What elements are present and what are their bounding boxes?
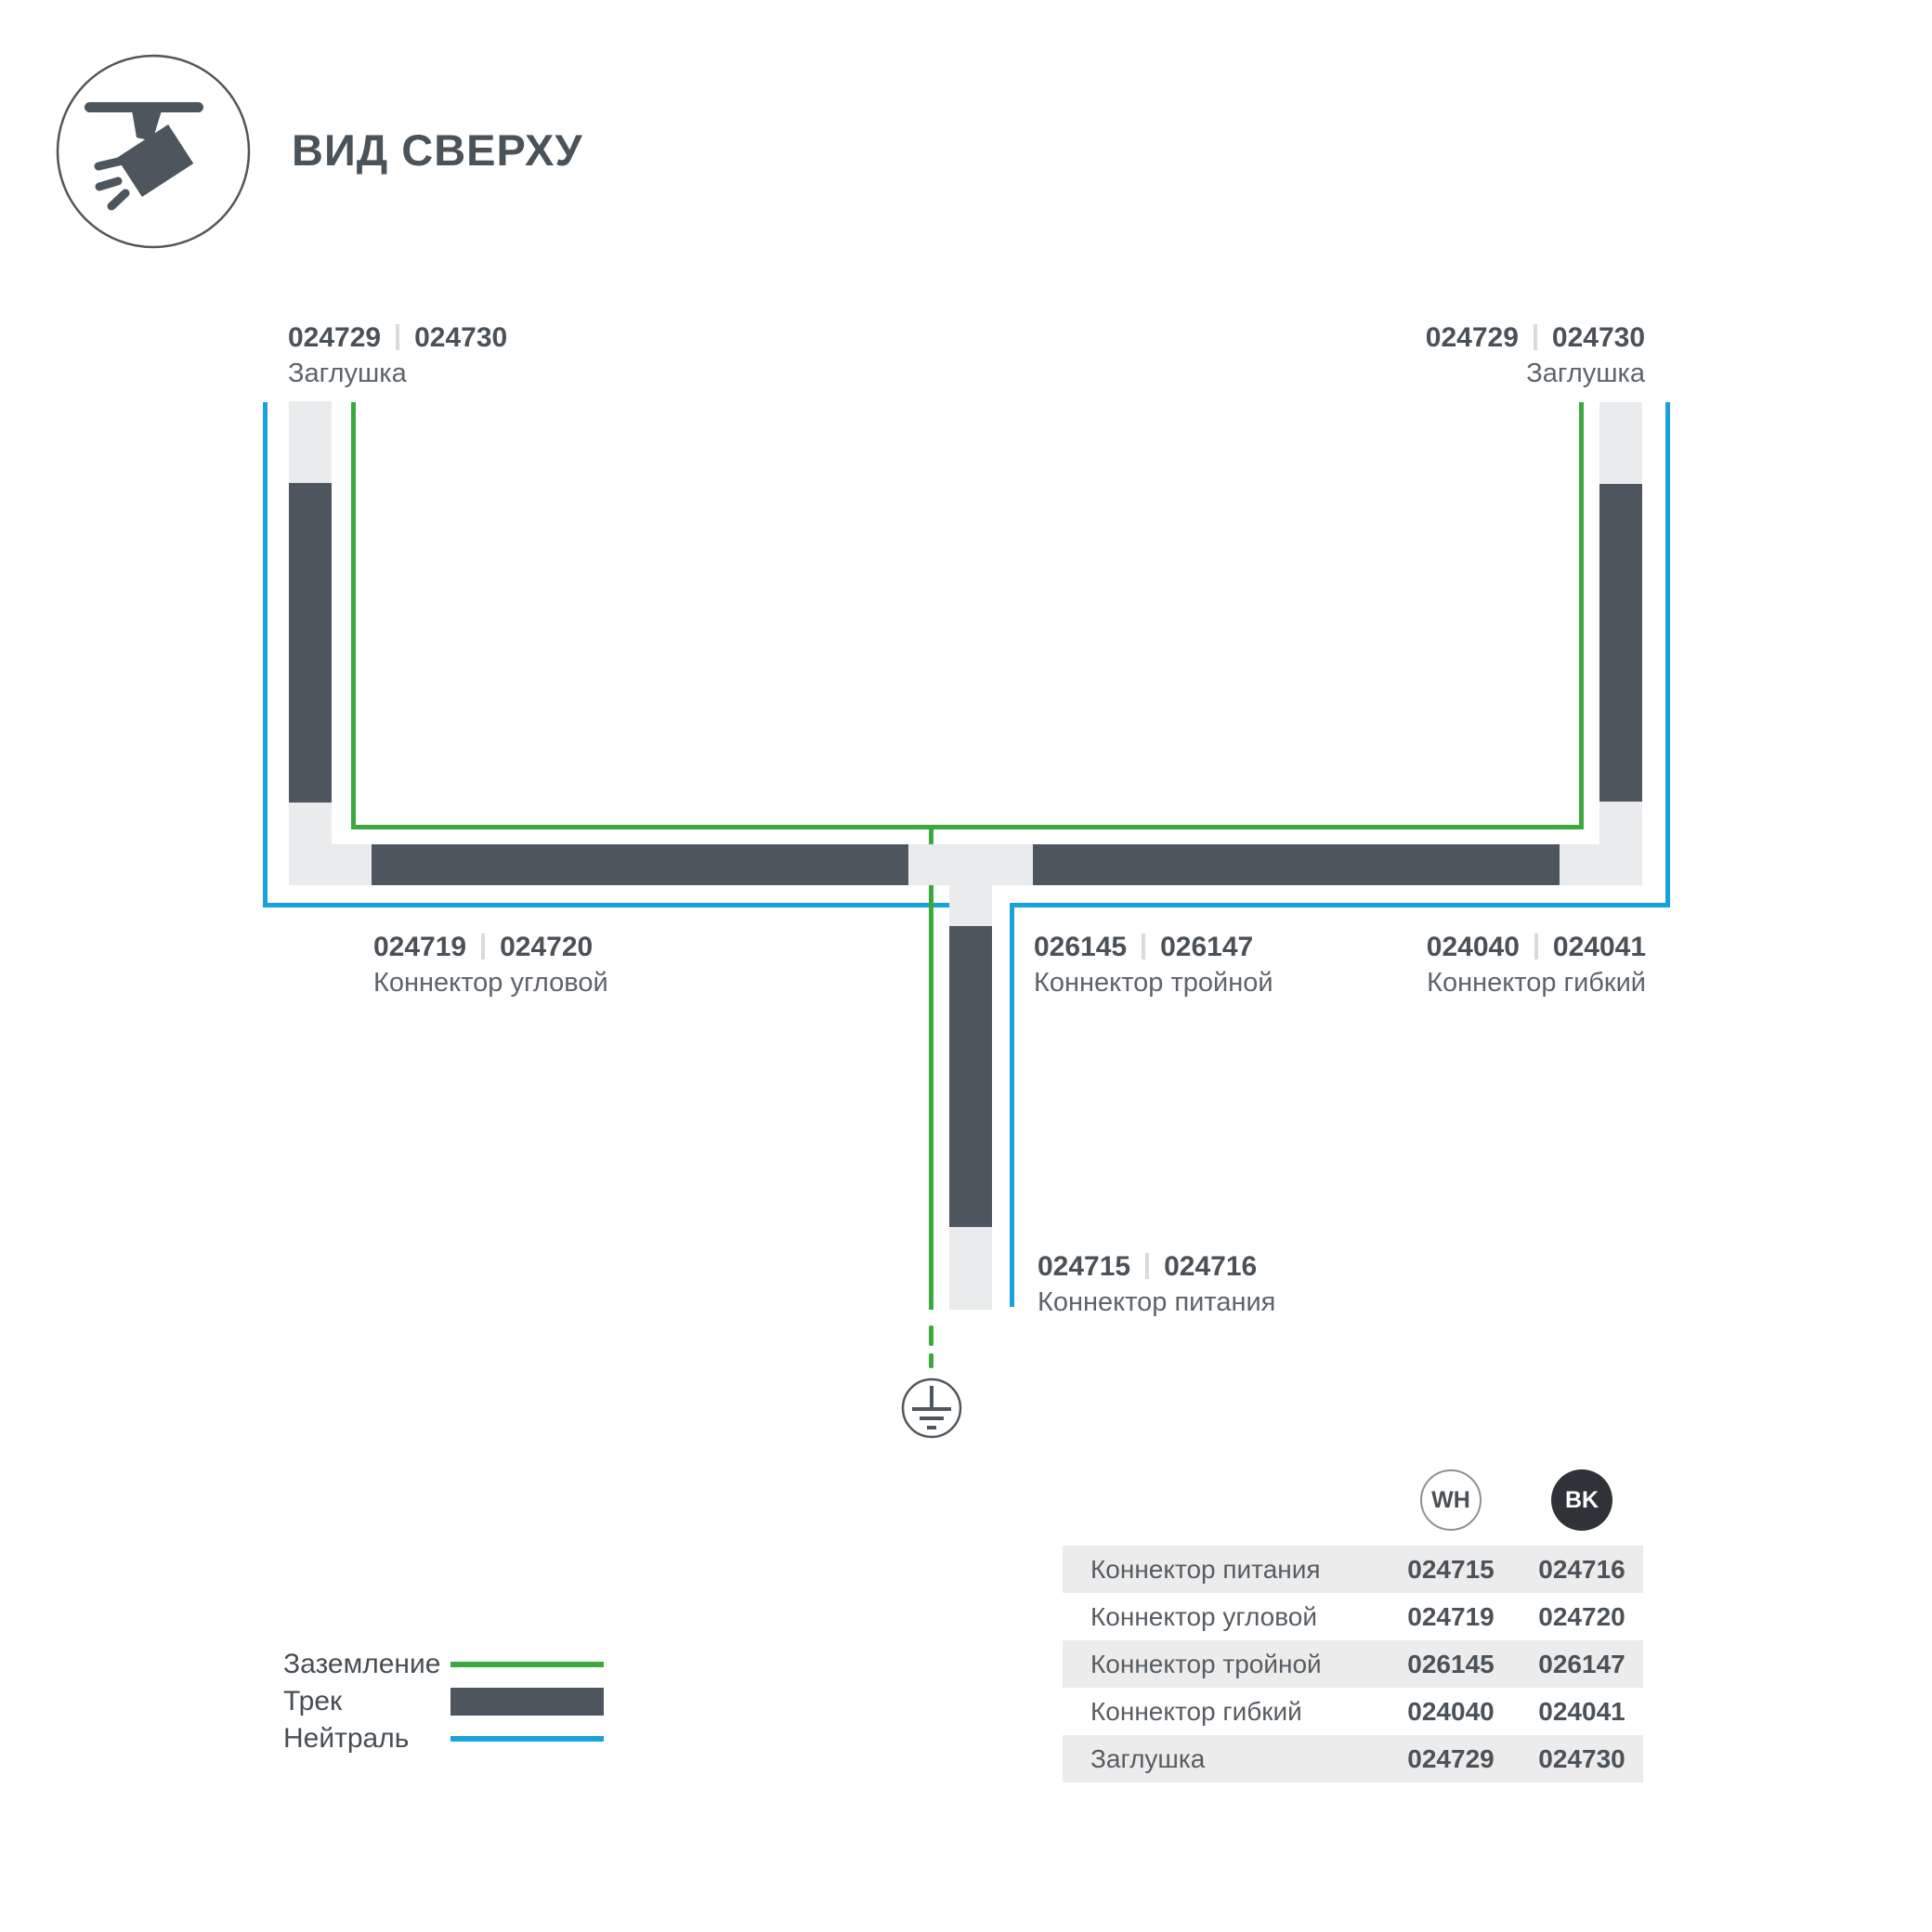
color-badge-white: WH	[1420, 1469, 1482, 1531]
power-connector-cap	[949, 1227, 992, 1310]
track-right-vertical	[1599, 484, 1642, 802]
track-left-vertical	[289, 483, 332, 803]
part-name: Коннектор угловой	[373, 969, 608, 997]
row-bk-code: 024041	[1526, 1697, 1638, 1727]
legend-item-track: Трек	[283, 1683, 604, 1720]
legend-label: Трек	[283, 1686, 450, 1717]
separator	[1534, 324, 1537, 350]
ground-line-left	[351, 402, 356, 829]
ground-line-right	[1579, 402, 1584, 829]
neutral-line-bottom-right	[1010, 903, 1670, 907]
track-spotlight-icon	[54, 52, 253, 251]
legend-item-ground: Заземление	[283, 1646, 604, 1683]
row-name: Заглушка	[1063, 1744, 1395, 1774]
triple-connector-stem	[949, 885, 992, 926]
row-wh-code: 024719	[1395, 1602, 1507, 1632]
row-name: Коннектор угловой	[1063, 1602, 1395, 1632]
table-row: Коннектор гибкий 024040 024041	[1063, 1688, 1643, 1735]
label-power-connector: 024715024716 Коннектор питания	[1038, 1252, 1275, 1316]
row-name: Коннектор тройной	[1063, 1650, 1395, 1679]
earth-ground-icon	[896, 1373, 971, 1447]
ground-line-drop-upper	[929, 829, 933, 844]
row-wh-code: 024715	[1395, 1555, 1507, 1585]
flex-connector-vertical	[1599, 802, 1642, 885]
separator	[1534, 933, 1538, 959]
part-name: Коннектор питания	[1038, 1288, 1275, 1316]
color-badge-black: BK	[1551, 1469, 1612, 1531]
separator	[481, 933, 485, 959]
triple-connector-bar	[908, 844, 1033, 885]
track-power-stem	[949, 926, 992, 1227]
table-row: Заглушка 024729 024730	[1063, 1735, 1643, 1782]
neutral-line-right	[1665, 402, 1670, 907]
row-name: Коннектор гибкий	[1063, 1697, 1395, 1727]
row-bk-code: 024730	[1526, 1744, 1638, 1774]
row-wh-code: 024729	[1395, 1744, 1507, 1774]
part-numbers: 024040024041	[1427, 933, 1646, 962]
part-name: Коннектор тройной	[1034, 969, 1273, 997]
part-name: Заглушка	[1426, 359, 1645, 387]
legend-label: Заземление	[283, 1649, 450, 1680]
row-bk-code: 026147	[1526, 1650, 1638, 1679]
endcap-right	[1599, 402, 1642, 484]
part-numbers: 024715024716	[1038, 1252, 1275, 1282]
separator	[1145, 1253, 1149, 1279]
table-row: Коннектор питания 024715 024716	[1063, 1546, 1643, 1593]
separator	[396, 324, 399, 350]
endcap-left	[289, 401, 332, 483]
part-numbers: 024729024730	[1426, 323, 1645, 353]
row-bk-code: 024720	[1526, 1602, 1638, 1632]
ground-line-swatch	[450, 1662, 604, 1667]
table-row: Коннектор тройной 026145 026147	[1063, 1640, 1643, 1688]
neutral-line-swatch	[450, 1736, 604, 1742]
label-triple-connector: 026145026147 Коннектор тройной	[1034, 933, 1273, 997]
part-numbers: 024719024720	[373, 933, 608, 962]
part-numbers: 026145026147	[1034, 933, 1273, 962]
neutral-line-bottom-left	[263, 903, 949, 907]
page: ВИД СВЕРХУ	[0, 0, 1932, 1932]
label-endcap-left: 024729024730 Заглушка	[288, 323, 507, 387]
table-row: Коннектор угловой 024719 024720	[1063, 1593, 1643, 1640]
legend: Заземление Трек Нейтраль	[283, 1646, 604, 1757]
label-corner-connector: 024719024720 Коннектор угловой	[373, 933, 608, 997]
track-bar-swatch	[450, 1688, 604, 1716]
neutral-line-left	[263, 402, 268, 907]
legend-item-neutral: Нейтраль	[283, 1720, 604, 1757]
ground-line-drop-lower	[929, 885, 933, 1310]
separator	[1142, 933, 1145, 959]
ground-line-dash-2	[929, 1353, 933, 1368]
label-endcap-right: 024729024730 Заглушка	[1426, 323, 1645, 387]
neutral-line-power-drop	[1010, 907, 1014, 1307]
corner-connector-horizontal	[289, 844, 372, 885]
part-name: Коннектор гибкий	[1427, 969, 1646, 997]
legend-label: Нейтраль	[283, 1723, 450, 1755]
page-title: ВИД СВЕРХУ	[292, 124, 583, 176]
part-numbers: 024729024730	[288, 323, 507, 353]
track-bottom-left	[372, 844, 908, 885]
part-number-table: WH BK Коннектор питания 024715 024716 Ко…	[1063, 1468, 1643, 1782]
row-wh-code: 026145	[1395, 1650, 1507, 1679]
label-flex-connector: 024040024041 Коннектор гибкий	[1427, 933, 1646, 997]
table-header: WH BK	[1063, 1468, 1643, 1546]
row-wh-code: 024040	[1395, 1697, 1507, 1727]
row-bk-code: 024716	[1526, 1555, 1638, 1585]
part-name: Заглушка	[288, 359, 507, 387]
ground-line-top	[351, 825, 1584, 829]
track-bottom-right	[1033, 844, 1560, 885]
row-name: Коннектор питания	[1063, 1555, 1395, 1585]
ground-line-dash-1	[929, 1325, 933, 1346]
